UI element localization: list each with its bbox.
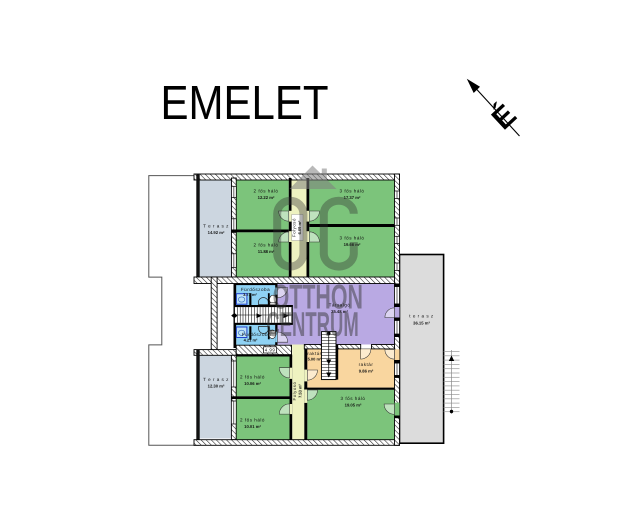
svg-text:CENTRUM: CENTRUM xyxy=(266,306,359,344)
svg-text:2 fős háló: 2 fős háló xyxy=(240,418,265,423)
svg-text:19.05 m²: 19.05 m² xyxy=(345,403,362,408)
svg-text:3 fős háló: 3 fős háló xyxy=(340,236,365,241)
svg-text:4.21 m²: 4.21 m² xyxy=(244,338,258,343)
svg-text:10.01 m²: 10.01 m² xyxy=(244,424,261,429)
svg-text:3 fős háló: 3 fős háló xyxy=(341,396,366,401)
svg-text:T e r a s z: T e r a s z xyxy=(203,377,229,382)
svg-text:14.92 m²: 14.92 m² xyxy=(208,230,225,235)
svg-text:3.73 m²: 3.73 m² xyxy=(243,292,257,297)
svg-text:5.00 m²: 5.00 m² xyxy=(308,357,322,362)
svg-text:raktár: raktár xyxy=(307,351,321,356)
svg-text:12.22 m²: 12.22 m² xyxy=(258,195,275,200)
svg-text:4.99: 4.99 xyxy=(265,348,276,353)
svg-text:7.53 m²: 7.53 m² xyxy=(297,383,302,397)
svg-text:9.86 m²: 9.86 m² xyxy=(359,369,374,374)
svg-text:EMELET: EMELET xyxy=(161,77,329,130)
svg-text:Folyosó: Folyosó xyxy=(292,382,297,401)
svg-text:2 fős háló: 2 fős háló xyxy=(240,375,265,380)
svg-text:3 fős háló: 3 fős háló xyxy=(340,189,365,194)
svg-text:raktár: raktár xyxy=(359,362,374,367)
svg-text:Folyosó: Folyosó xyxy=(292,218,297,237)
svg-text:t e r a s z: t e r a s z xyxy=(409,314,434,319)
svg-text:36.15 m²: 36.15 m² xyxy=(413,321,430,326)
svg-text:11.88 m²: 11.88 m² xyxy=(258,249,275,254)
svg-text:2 fős háló: 2 fős háló xyxy=(254,189,279,194)
svg-text:T e r a s z: T e r a s z xyxy=(203,224,229,229)
svg-text:12.30 m²: 12.30 m² xyxy=(208,384,225,389)
svg-text:10.06 m²: 10.06 m² xyxy=(244,381,261,386)
